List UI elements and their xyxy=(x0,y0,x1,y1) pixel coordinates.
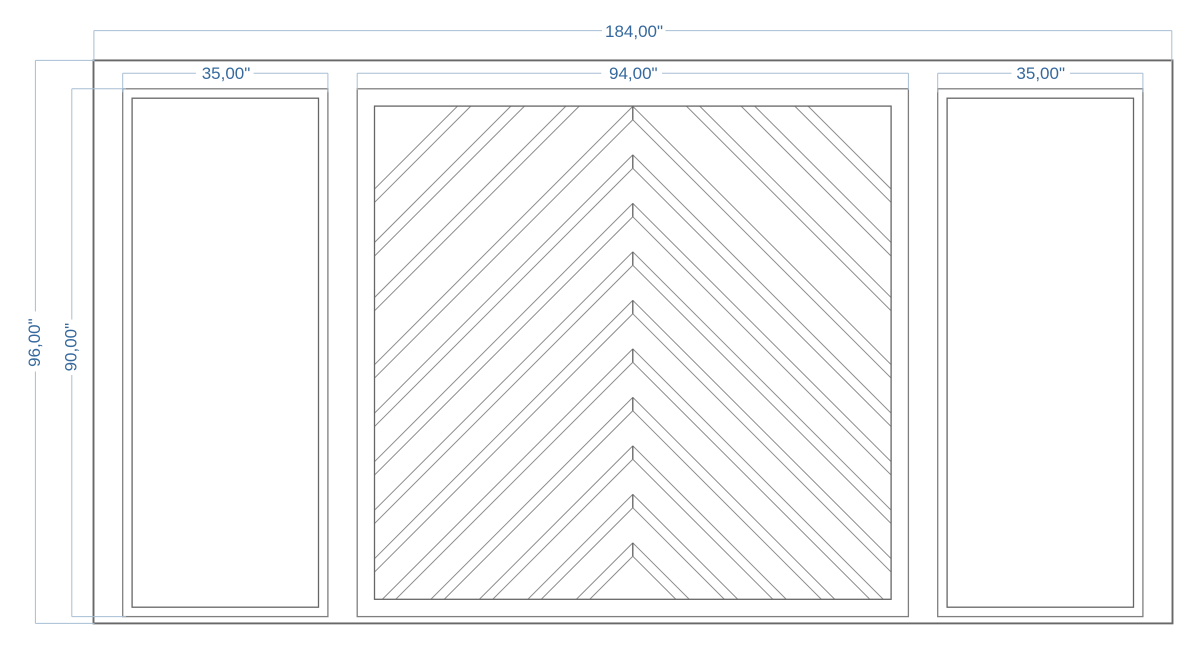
svg-text:35,00": 35,00" xyxy=(202,64,251,83)
svg-text:94,00": 94,00" xyxy=(609,64,658,83)
svg-text:96,00": 96,00" xyxy=(25,318,44,367)
svg-text:35,00": 35,00" xyxy=(1016,64,1065,83)
svg-text:184,00": 184,00" xyxy=(605,22,663,41)
svg-text:90,00": 90,00" xyxy=(61,323,80,372)
